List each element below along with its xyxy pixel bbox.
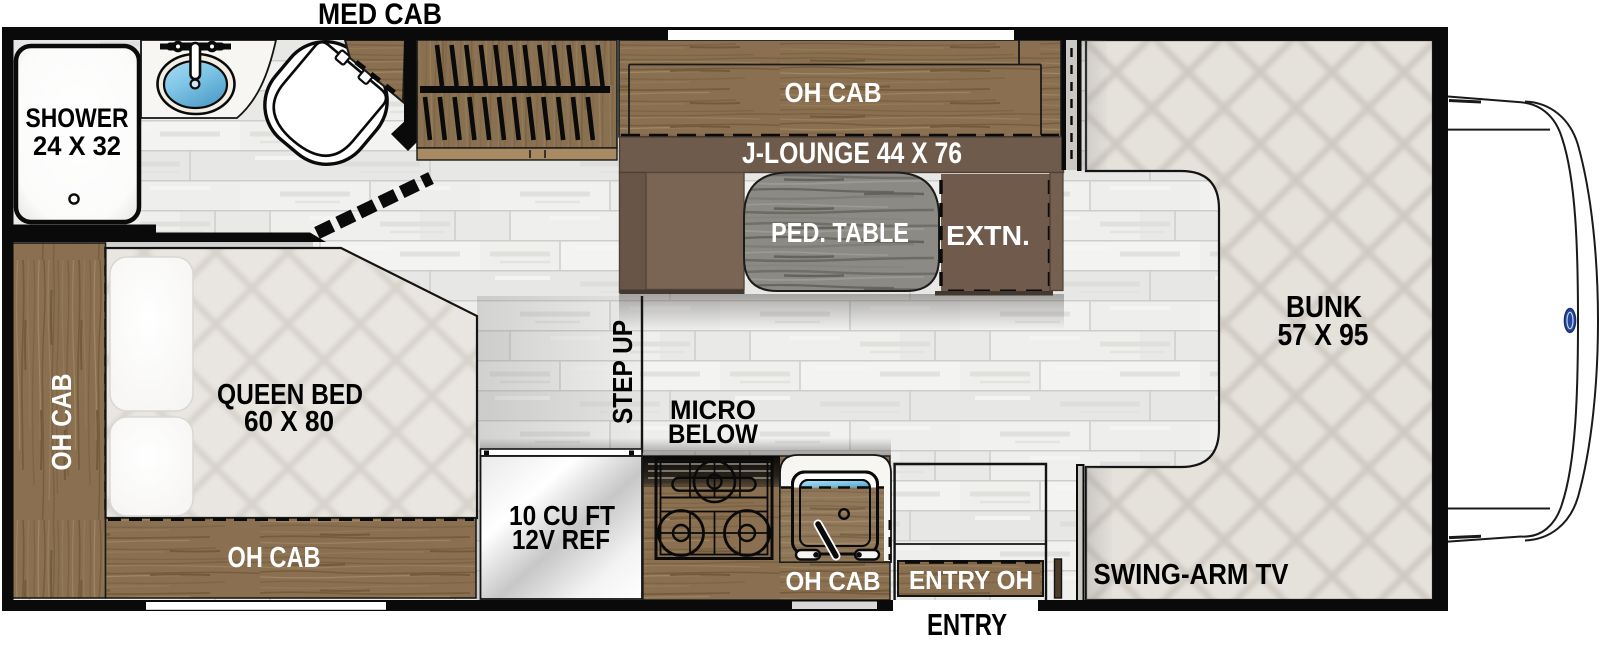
svg-text:BELOW: BELOW [668,419,758,449]
svg-text:J-LOUNGE 44 X 76: J-LOUNGE 44 X 76 [742,137,962,170]
svg-text:STEP UP: STEP UP [607,320,638,424]
svg-text:PED. TABLE: PED. TABLE [771,217,909,248]
svg-text:24 X 32: 24 X 32 [33,131,121,161]
svg-text:EXTN.: EXTN. [946,220,1030,251]
svg-text:OH CAB: OH CAB [785,77,882,108]
svg-text:60 X 80: 60 X 80 [244,406,334,438]
svg-text:OH CAB: OH CAB [46,374,77,471]
svg-text:OH CAB: OH CAB [228,542,321,574]
svg-text:57 X 95: 57 X 95 [1278,317,1369,352]
svg-text:SHOWER: SHOWER [26,103,129,133]
svg-text:12V REF: 12V REF [512,524,610,555]
svg-text:ENTRY OH: ENTRY OH [909,565,1033,595]
svg-text:MED CAB: MED CAB [318,0,442,31]
svg-text:ENTRY: ENTRY [927,607,1007,642]
svg-text:OH CAB: OH CAB [786,566,881,596]
svg-text:SWING-ARM TV: SWING-ARM TV [1094,559,1290,591]
